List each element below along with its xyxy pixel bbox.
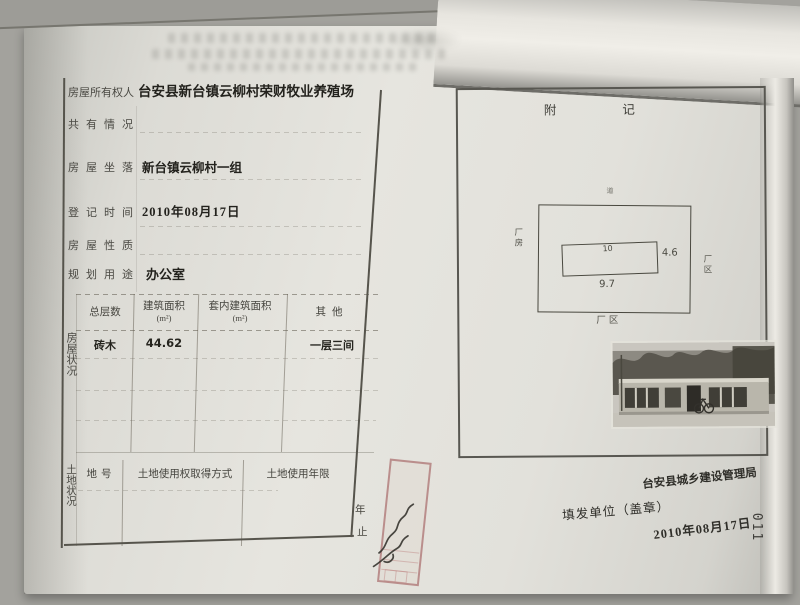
col-header-land-number: 地号 xyxy=(78,468,124,481)
col-header-land-right-method: 土地使用权取得方式 xyxy=(124,468,246,481)
annex-box: 附记 道 厂房 厂区 厂区 10 4.6 9.7 xyxy=(456,86,769,458)
annex-title: 附记 xyxy=(544,98,701,118)
field-value-registration-date: 2010年08月17日 xyxy=(142,201,241,220)
grid-line-v xyxy=(122,460,124,546)
grid-line xyxy=(76,452,374,453)
plan-inner-number: 10 xyxy=(602,244,613,254)
plan-width-dimension: 9.7 xyxy=(599,279,615,290)
field-label-owner: 房屋所有权人 xyxy=(68,84,134,100)
grid-line xyxy=(76,330,382,331)
table-border-bottom xyxy=(64,535,354,546)
page-number: 011 xyxy=(749,513,764,542)
field-value-planned-use: 办公室 xyxy=(146,264,185,283)
fill-line xyxy=(140,226,362,227)
term-year-char: 年 xyxy=(355,502,366,517)
plan-left-label: 厂房 xyxy=(513,228,525,249)
red-stamp-image xyxy=(361,452,459,600)
grid-line xyxy=(78,490,278,491)
label-column-line xyxy=(136,106,137,292)
cell-building-area: 44.62 xyxy=(132,336,196,350)
field-label-planned-use: 规划用途 xyxy=(68,266,140,282)
bleedthrough-smudge xyxy=(388,28,462,52)
building-photo-image xyxy=(612,342,775,427)
plan-bottom-label: 厂区 xyxy=(596,312,621,326)
field-label-registration-date: 登记时间 xyxy=(68,204,140,220)
plan-building-rect: 10 xyxy=(561,241,658,276)
grid-line xyxy=(76,390,378,391)
field-value-location: 新台镇云柳村一组 xyxy=(142,157,242,176)
field-label-location: 房屋坐落 xyxy=(68,159,140,175)
side-label-land-condition: 土地状况 xyxy=(63,464,78,542)
col-header-total-floors: 总层数 xyxy=(78,306,132,319)
bleedthrough-text-row xyxy=(188,63,418,71)
cell-other: 一层三间 xyxy=(284,337,380,353)
fill-line xyxy=(140,132,362,133)
grid-line xyxy=(76,294,382,295)
col-header-land-term: 土地使用年限 xyxy=(248,468,348,481)
certificate-table: 房屋所有权人 台安县新台镇云柳村荣财牧业养殖场 共有情况 房屋坐落 新台镇云柳村… xyxy=(62,76,384,550)
field-label-house-nature: 房屋性质 xyxy=(68,237,140,253)
grid-line xyxy=(76,358,380,359)
col-header-inner-area: 套内建筑面积 (m²) xyxy=(196,300,284,324)
grid-line xyxy=(76,420,376,421)
fill-line xyxy=(140,179,362,180)
red-stamp xyxy=(361,452,459,600)
building-photo xyxy=(612,342,775,427)
plan-right-label: 厂区 xyxy=(702,254,714,275)
fill-line xyxy=(140,254,362,255)
cell-structure: 砖木 xyxy=(78,337,132,353)
plan-height-dimension: 4.6 xyxy=(662,248,678,259)
plan-top-label: 道 xyxy=(606,186,613,196)
col-header-building-area: 建筑面积 (m²) xyxy=(132,300,196,324)
field-label-co-ownership: 共有情况 xyxy=(68,116,140,132)
field-value-owner: 台安县新台镇云柳村荣财牧业养殖场 xyxy=(138,80,354,100)
